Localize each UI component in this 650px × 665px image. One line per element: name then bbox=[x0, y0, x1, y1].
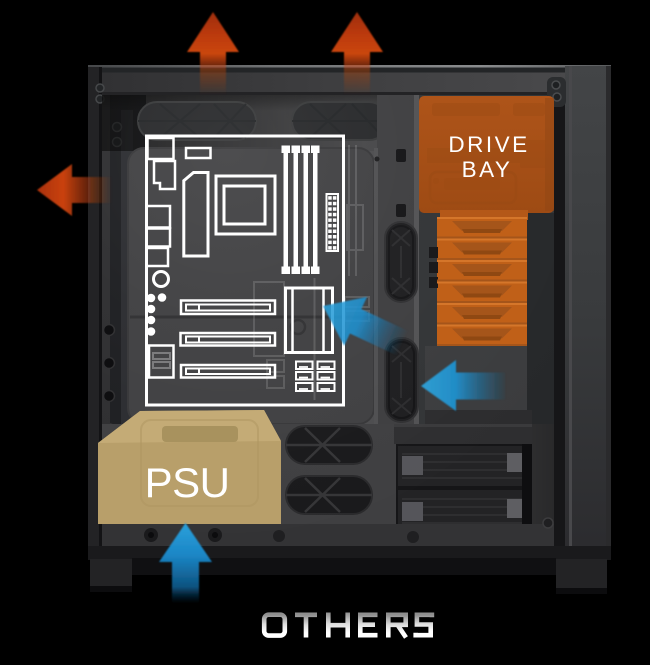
svg-text:DRIVE: DRIVE bbox=[448, 132, 529, 157]
svg-text:BAY: BAY bbox=[462, 157, 513, 182]
svg-text:PSU: PSU bbox=[145, 459, 230, 506]
